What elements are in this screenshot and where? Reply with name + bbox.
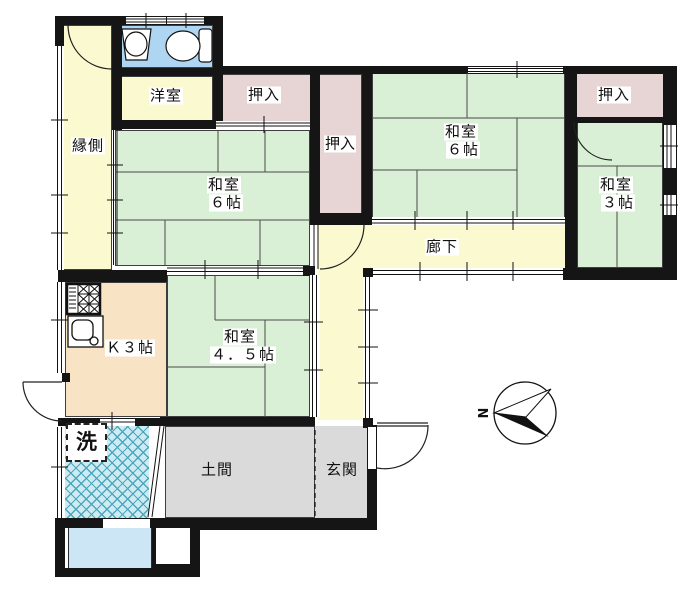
wall xyxy=(565,66,577,280)
wall xyxy=(367,425,377,530)
bathtub xyxy=(68,527,152,569)
wall xyxy=(112,120,216,129)
kitchen-label: Ｋ３帖 xyxy=(105,340,155,357)
wall xyxy=(213,16,223,128)
oshiire-top-left-label: 押入 xyxy=(247,87,281,104)
wall xyxy=(213,66,677,74)
wall xyxy=(112,25,122,130)
laundry-label: 洗 xyxy=(75,434,98,451)
wall xyxy=(58,270,167,282)
washitsu6-right-label: 和室 xyxy=(444,124,478,141)
room-rouka-vertical xyxy=(318,225,363,420)
floorplan-canvas: N 洗 縁側 洋室 押入 押入 押入 和室 ６帖 和室 ３帖 和室 ６帖 廊下 … xyxy=(0,0,695,594)
bath-step-box xyxy=(152,524,194,568)
wall xyxy=(55,16,223,25)
compass-north-icon: N xyxy=(477,382,556,444)
genkan-label: 玄関 xyxy=(325,462,359,479)
washitsu45-size: ４．５帖 xyxy=(210,347,276,364)
wall xyxy=(663,66,677,280)
room-toilet xyxy=(119,25,213,68)
engawa-label: 縁側 xyxy=(71,138,105,155)
laundry-box: 洗 xyxy=(66,423,107,462)
wall xyxy=(565,117,677,123)
washitsu6-left-size: ６帖 xyxy=(209,195,243,212)
youshitsu-label: 洋室 xyxy=(149,88,183,105)
wall xyxy=(160,417,315,426)
wall xyxy=(55,518,165,528)
room-doma xyxy=(165,426,315,518)
wall xyxy=(303,266,315,276)
washitsu6-right-size: ６帖 xyxy=(446,142,480,159)
wall xyxy=(112,68,223,76)
wall xyxy=(62,373,70,382)
washitsu6-left-label: 和室 xyxy=(207,177,241,194)
wall xyxy=(362,66,372,225)
wall xyxy=(310,66,320,225)
compass-north-label: N xyxy=(477,408,492,419)
doma-label: 土間 xyxy=(200,462,234,479)
oshiire-top-right-label: 押入 xyxy=(597,87,631,104)
wall xyxy=(363,268,373,277)
washitsu3-label: 和室 xyxy=(599,177,633,194)
rouka-label: 廊下 xyxy=(425,239,459,256)
wall xyxy=(55,16,64,46)
wall xyxy=(55,568,200,577)
oshiire-middle-label: 押入 xyxy=(324,136,356,153)
wall xyxy=(563,268,677,280)
washitsu3-size: ３帖 xyxy=(601,195,635,212)
wall xyxy=(55,518,65,577)
washitsu45-label: 和室 xyxy=(223,329,257,346)
